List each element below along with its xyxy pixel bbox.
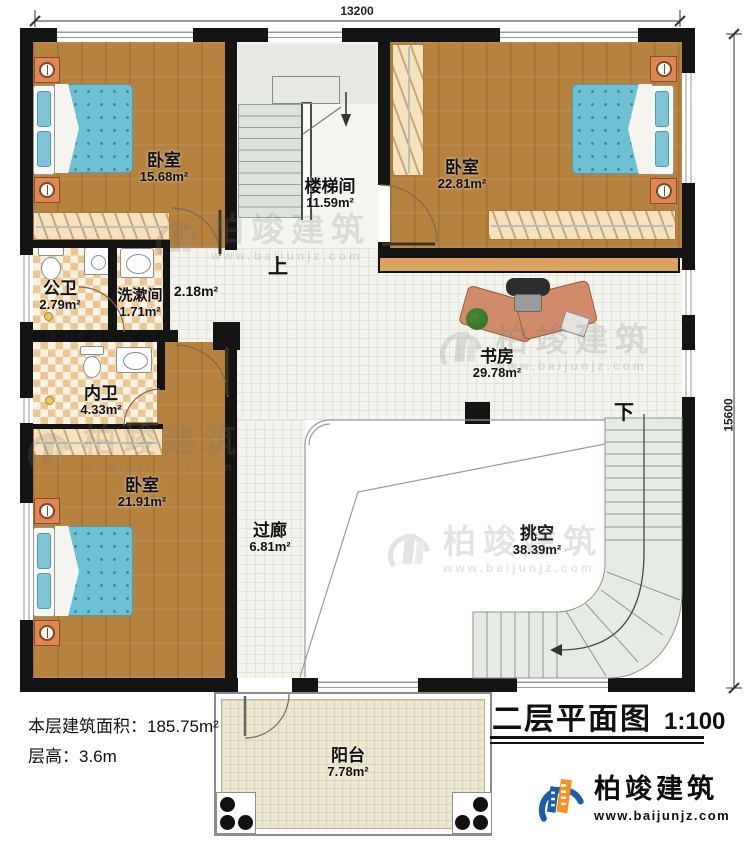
window xyxy=(682,73,695,183)
toilet-bowl xyxy=(41,257,61,280)
nightstand xyxy=(34,498,60,524)
nightstand xyxy=(34,57,60,83)
post-dot-icon xyxy=(473,815,488,830)
wall-pillar xyxy=(465,402,490,424)
beam xyxy=(378,256,680,273)
brand-name: 柏竣建筑 xyxy=(594,776,730,803)
wardrobe-rail xyxy=(36,226,167,228)
title-underline xyxy=(490,736,704,739)
wardrobe-rail xyxy=(408,47,410,173)
nightstand xyxy=(650,178,677,204)
floor-height-line: 层高：3.6m xyxy=(28,742,219,772)
room-label-private-bath: 内卫 4.33m² xyxy=(80,384,121,418)
sink-basin xyxy=(123,352,148,370)
room-label-bedroom-tr: 卧室 22.81m² xyxy=(438,158,486,192)
post-dot-icon xyxy=(455,815,470,830)
room-label-corridor: 过廊 6.81m² xyxy=(249,521,290,555)
window xyxy=(517,678,608,692)
brand-logo: 柏竣建筑 www.baijunjz.com xyxy=(534,772,730,826)
window xyxy=(268,28,342,42)
lamp-icon xyxy=(39,625,55,641)
room-label-bedroom-tl: 卧室 15.68m² xyxy=(140,151,188,185)
nightstand xyxy=(34,177,60,203)
lamp-icon xyxy=(656,183,672,199)
brand-logo-icon xyxy=(534,772,588,826)
nightstand xyxy=(650,56,677,82)
wardrobe xyxy=(33,428,163,456)
room-label-study: 书房 29.78m² xyxy=(473,347,521,381)
wall xyxy=(193,28,268,42)
wall xyxy=(292,678,318,692)
stair-upper-flight xyxy=(238,104,302,218)
window xyxy=(20,503,33,620)
wall xyxy=(418,678,517,692)
wardrobe xyxy=(33,212,170,240)
title-underline xyxy=(490,742,704,744)
washer-drum xyxy=(91,255,106,270)
floor-drain xyxy=(45,396,54,405)
post-dot-icon xyxy=(473,797,488,812)
office-chair-seat xyxy=(514,294,542,312)
wall xyxy=(378,42,390,185)
floor-plan-page: 卧室 15.68m² 楼梯间 11.59m² 卧室 22.81m² 公卫 2.7… xyxy=(0,0,750,843)
window xyxy=(500,28,638,42)
wardrobe xyxy=(392,44,424,176)
lamp-icon xyxy=(39,182,55,198)
wall xyxy=(225,42,237,250)
wall xyxy=(682,183,695,270)
wall xyxy=(20,423,33,503)
sink-counter xyxy=(116,347,152,373)
wall xyxy=(342,28,500,42)
room-label-washroom: 洗漱间 1.71m² xyxy=(117,288,162,319)
dimension-width: 13200 xyxy=(340,4,373,18)
brand-url: www.baijunjz.com xyxy=(594,808,730,823)
wardrobe-rail xyxy=(491,225,673,227)
wall xyxy=(20,678,238,692)
post-dot-icon xyxy=(238,815,253,830)
page-title: 二层平面图 xyxy=(492,694,652,738)
sink-counter xyxy=(120,248,154,278)
lamp-icon xyxy=(39,62,55,78)
wall xyxy=(225,342,237,678)
wardrobe xyxy=(488,210,676,240)
post-dot-icon xyxy=(220,797,235,812)
plant xyxy=(466,308,488,330)
wall xyxy=(608,678,695,692)
toilet-tank xyxy=(80,346,104,355)
wall xyxy=(108,248,117,330)
lamp-icon xyxy=(39,503,55,519)
info-block: 本层建筑面积：185.75m² 层高：3.6m xyxy=(28,712,219,772)
dimension-height: 15600 xyxy=(722,398,736,431)
pillow xyxy=(655,91,669,127)
wall xyxy=(682,397,695,692)
wall xyxy=(682,28,695,73)
room-label-balcony: 阳台 7.78m² xyxy=(327,746,368,780)
drawing-scale: 1:100 xyxy=(664,708,725,736)
post-dot-icon xyxy=(220,815,235,830)
window xyxy=(20,398,33,423)
lamp-icon xyxy=(656,61,672,77)
room-label-vestibule: 2.18m² xyxy=(174,284,218,300)
wall xyxy=(157,342,165,390)
room-label-void: 挑空 38.39m² xyxy=(513,524,561,558)
wall xyxy=(33,424,163,429)
pillow xyxy=(37,91,51,127)
floor-drain xyxy=(44,312,53,321)
pillow xyxy=(37,131,51,167)
toilet-bowl xyxy=(83,356,101,378)
pillow xyxy=(37,533,51,569)
window xyxy=(682,270,695,315)
stair-down-label: 下 xyxy=(614,396,634,425)
sink-basin xyxy=(126,254,151,274)
stair-up-label: 上 xyxy=(268,250,288,279)
window xyxy=(318,678,418,692)
room-label-stairwell: 楼梯间 11.59m² xyxy=(305,177,356,211)
floor-area-line: 本层建筑面积：185.75m² xyxy=(28,712,219,742)
pillow xyxy=(655,131,669,167)
balcony-post xyxy=(452,792,492,834)
wall xyxy=(20,240,170,248)
balcony-post xyxy=(216,792,256,834)
wall xyxy=(163,240,170,342)
pillow xyxy=(37,573,51,609)
wall xyxy=(682,315,695,350)
title-block: 二层平面图 1:100 xyxy=(492,694,725,738)
stair-opening-outline xyxy=(272,76,340,104)
nightstand xyxy=(34,620,60,646)
room-label-bedroom-bl: 卧室 21.91m² xyxy=(118,476,166,510)
floor-hall-study xyxy=(170,248,682,420)
window xyxy=(20,255,33,322)
room-label-public-bath: 公卫 2.79m² xyxy=(39,279,80,313)
wall xyxy=(20,28,33,255)
floor-void xyxy=(305,420,682,678)
wardrobe-rail xyxy=(36,442,160,444)
wall xyxy=(20,330,178,342)
window xyxy=(57,28,193,42)
window xyxy=(682,350,695,397)
washing-machine xyxy=(84,245,110,275)
